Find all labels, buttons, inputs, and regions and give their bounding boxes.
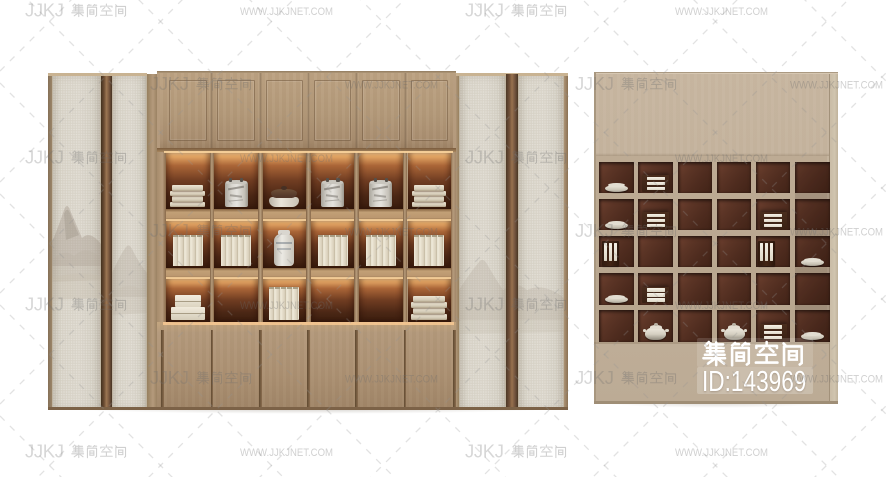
svg-text:WWW.JJKJNET.COM: WWW.JJKJNET.COM — [790, 227, 883, 239]
svg-text:JJKJ: JJKJ — [25, 441, 64, 462]
svg-text:WWW.JJKJNET.COM: WWW.JJKJNET.COM — [675, 153, 768, 165]
svg-text:JJKJ: JJKJ — [465, 147, 504, 168]
svg-text:WWW.JJKJNET.COM: WWW.JJKJNET.COM — [345, 227, 438, 239]
svg-text:WWW.JJKJNET.COM: WWW.JJKJNET.COM — [240, 6, 333, 18]
svg-text:JJKJ: JJKJ — [150, 220, 189, 241]
svg-text:WWW.JJKJNET.COM: WWW.JJKJNET.COM — [675, 447, 768, 459]
svg-text:JJKJ: JJKJ — [150, 73, 189, 94]
svg-text:JJKJ: JJKJ — [25, 294, 64, 315]
svg-text:WWW.JJKJNET.COM: WWW.JJKJNET.COM — [790, 374, 883, 386]
svg-text:JJKJ: JJKJ — [150, 367, 189, 388]
svg-text:WWW.JJKJNET.COM: WWW.JJKJNET.COM — [790, 80, 883, 92]
svg-text:JJKJ: JJKJ — [465, 441, 504, 462]
svg-text:JJKJ: JJKJ — [575, 73, 614, 94]
svg-text:JJKJ: JJKJ — [575, 367, 614, 388]
svg-text:WWW.JJKJNET.COM: WWW.JJKJNET.COM — [240, 447, 333, 459]
svg-text:JJKJ: JJKJ — [465, 294, 504, 315]
svg-text:WWW.JJKJNET.COM: WWW.JJKJNET.COM — [240, 300, 333, 312]
svg-text:JJKJ: JJKJ — [25, 147, 64, 168]
svg-text:WWW.JJKJNET.COM: WWW.JJKJNET.COM — [240, 153, 333, 165]
svg-text:JJKJ: JJKJ — [575, 220, 614, 241]
svg-text:WWW.JJKJNET.COM: WWW.JJKJNET.COM — [675, 300, 768, 312]
svg-text:WWW.JJKJNET.COM: WWW.JJKJNET.COM — [345, 374, 438, 386]
svg-text:WWW.JJKJNET.COM: WWW.JJKJNET.COM — [675, 6, 768, 18]
svg-text:WWW.JJKJNET.COM: WWW.JJKJNET.COM — [345, 80, 438, 92]
svg-text:JJKJ: JJKJ — [465, 0, 504, 21]
svg-text:JJKJ: JJKJ — [25, 0, 64, 21]
